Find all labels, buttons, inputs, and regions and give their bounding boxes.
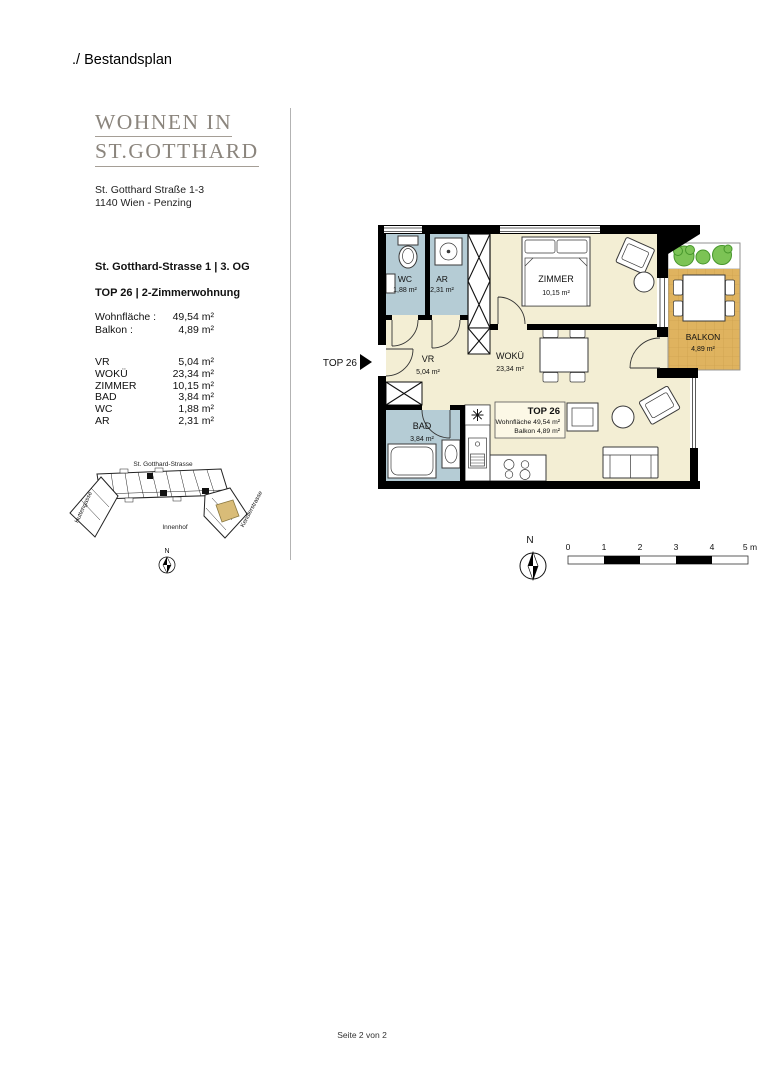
scale-and-north: N 0 1 2 3 4 5 m xyxy=(500,528,764,595)
room-label-woku: WOKÜ xyxy=(496,351,524,361)
scale-tick-2: 2 xyxy=(638,542,643,552)
svg-text:N: N xyxy=(526,535,533,546)
summary-value: 4,89 m² xyxy=(178,324,214,337)
entrance-label: TOP 26 xyxy=(323,354,372,370)
street-label-top: St. Gotthard-Strasse xyxy=(133,461,193,468)
room-label-ar: AR xyxy=(436,274,448,284)
room-label-vr: VR xyxy=(422,354,435,364)
scale-tick-3: 3 xyxy=(674,542,679,552)
scale-tick-0: 0 xyxy=(566,542,571,552)
sofa xyxy=(603,447,658,478)
room-label-wc: WC xyxy=(398,274,412,284)
area-summary: Wohnfläche : 49,54 m² Balkon : 4,89 m² xyxy=(95,311,214,336)
brand-logo: WOHNEN IN ST.GOTTHARD xyxy=(95,110,259,169)
room-value: 2,31 m² xyxy=(178,416,214,428)
vr-closet xyxy=(386,382,422,405)
room-value: 23,34 m² xyxy=(173,369,214,381)
info-box-line1: Wohnfläche 49,54 m² xyxy=(496,419,561,426)
site-north-arrow: N xyxy=(159,548,175,573)
svg-text:TOP 26: TOP 26 xyxy=(323,358,358,369)
courtyard-label: Innenhof xyxy=(162,524,187,531)
room-label-balkon: BALKON xyxy=(686,332,721,342)
site-plan: St. Gotthard-Strasse Huttengasse Kendler… xyxy=(55,450,285,585)
location-line: St. Gotthard-Strasse 1 | 3. OG xyxy=(95,261,250,273)
room-label: AR xyxy=(95,416,110,428)
room-row: AR2,31 m² xyxy=(95,416,214,428)
scale-tick-4: 4 xyxy=(710,542,715,552)
room-area-bad: 3,84 m² xyxy=(410,436,434,443)
summary-label: Balkon : xyxy=(95,324,133,337)
info-box-title: TOP 26 xyxy=(528,406,560,417)
summary-row: Balkon : 4,89 m² xyxy=(95,324,214,337)
bath-sink xyxy=(442,440,460,468)
room-area-wc: 1,88 m² xyxy=(393,287,417,294)
svg-text:N: N xyxy=(164,548,169,555)
unit-info-box: TOP 26 Wohnfläche 49,54 m² Balkon 4,89 m… xyxy=(495,402,565,438)
room-label: WOKÜ xyxy=(95,369,128,381)
closet-box xyxy=(468,328,490,354)
room-label-zimmer: ZIMMER xyxy=(538,274,574,284)
north-arrow-icon: N xyxy=(520,535,546,580)
site-building-outline xyxy=(70,468,247,538)
info-box-line2: Balkon 4,89 m² xyxy=(514,428,560,435)
room-area-list: VR5,04 m² WOKÜ23,34 m² ZIMMER10,15 m² BA… xyxy=(95,357,214,428)
round-table xyxy=(612,406,634,428)
room-area-balkon: 4,89 m² xyxy=(691,346,715,353)
summary-label: Wohnfläche : xyxy=(95,311,156,324)
room-area-vr: 5,04 m² xyxy=(416,369,440,376)
scale-tick-1: 1 xyxy=(602,542,607,552)
room-label-bad: BAD xyxy=(413,421,432,431)
vertical-divider xyxy=(290,108,291,560)
logo-line-1: WOHNEN IN xyxy=(95,110,232,137)
plan-document-page: ./ Bestandsplan WOHNEN IN ST.GOTTHARD St… xyxy=(0,0,764,1080)
shaft xyxy=(468,234,490,328)
room-row: WOKÜ23,34 m² xyxy=(95,369,214,381)
washing-machine xyxy=(435,238,462,265)
tv-cabinet xyxy=(567,403,598,431)
address-block: St. Gotthard Straße 1-3 1140 Wien - Penz… xyxy=(95,184,204,210)
room-area-ar: 2,31 m² xyxy=(430,287,454,294)
scale-bar: 0 1 2 3 4 5 m xyxy=(566,542,757,564)
balcony-table xyxy=(683,275,725,321)
logo-line-2: ST.GOTTHARD xyxy=(95,139,259,166)
summary-row: Wohnfläche : 49,54 m² xyxy=(95,311,214,324)
room-area-woku: 23,34 m² xyxy=(496,366,524,373)
document-heading: ./ Bestandsplan xyxy=(72,52,172,68)
room-area-zimmer: 10,15 m² xyxy=(542,290,570,297)
floor-plan: TOP 26 xyxy=(297,212,764,502)
page-number: Seite 2 von 2 xyxy=(299,1030,425,1040)
entrance-arrow-icon xyxy=(360,354,372,370)
address-line-1: St. Gotthard Straße 1-3 xyxy=(95,184,204,197)
scale-tick-5: 5 m xyxy=(743,542,757,552)
bathtub xyxy=(388,444,436,478)
kitchen-sink xyxy=(469,438,487,468)
summary-value: 49,54 m² xyxy=(173,311,214,324)
address-line-2: 1140 Wien - Penzing xyxy=(95,197,204,210)
unit-line: TOP 26 | 2-Zimmerwohnung xyxy=(95,287,240,299)
